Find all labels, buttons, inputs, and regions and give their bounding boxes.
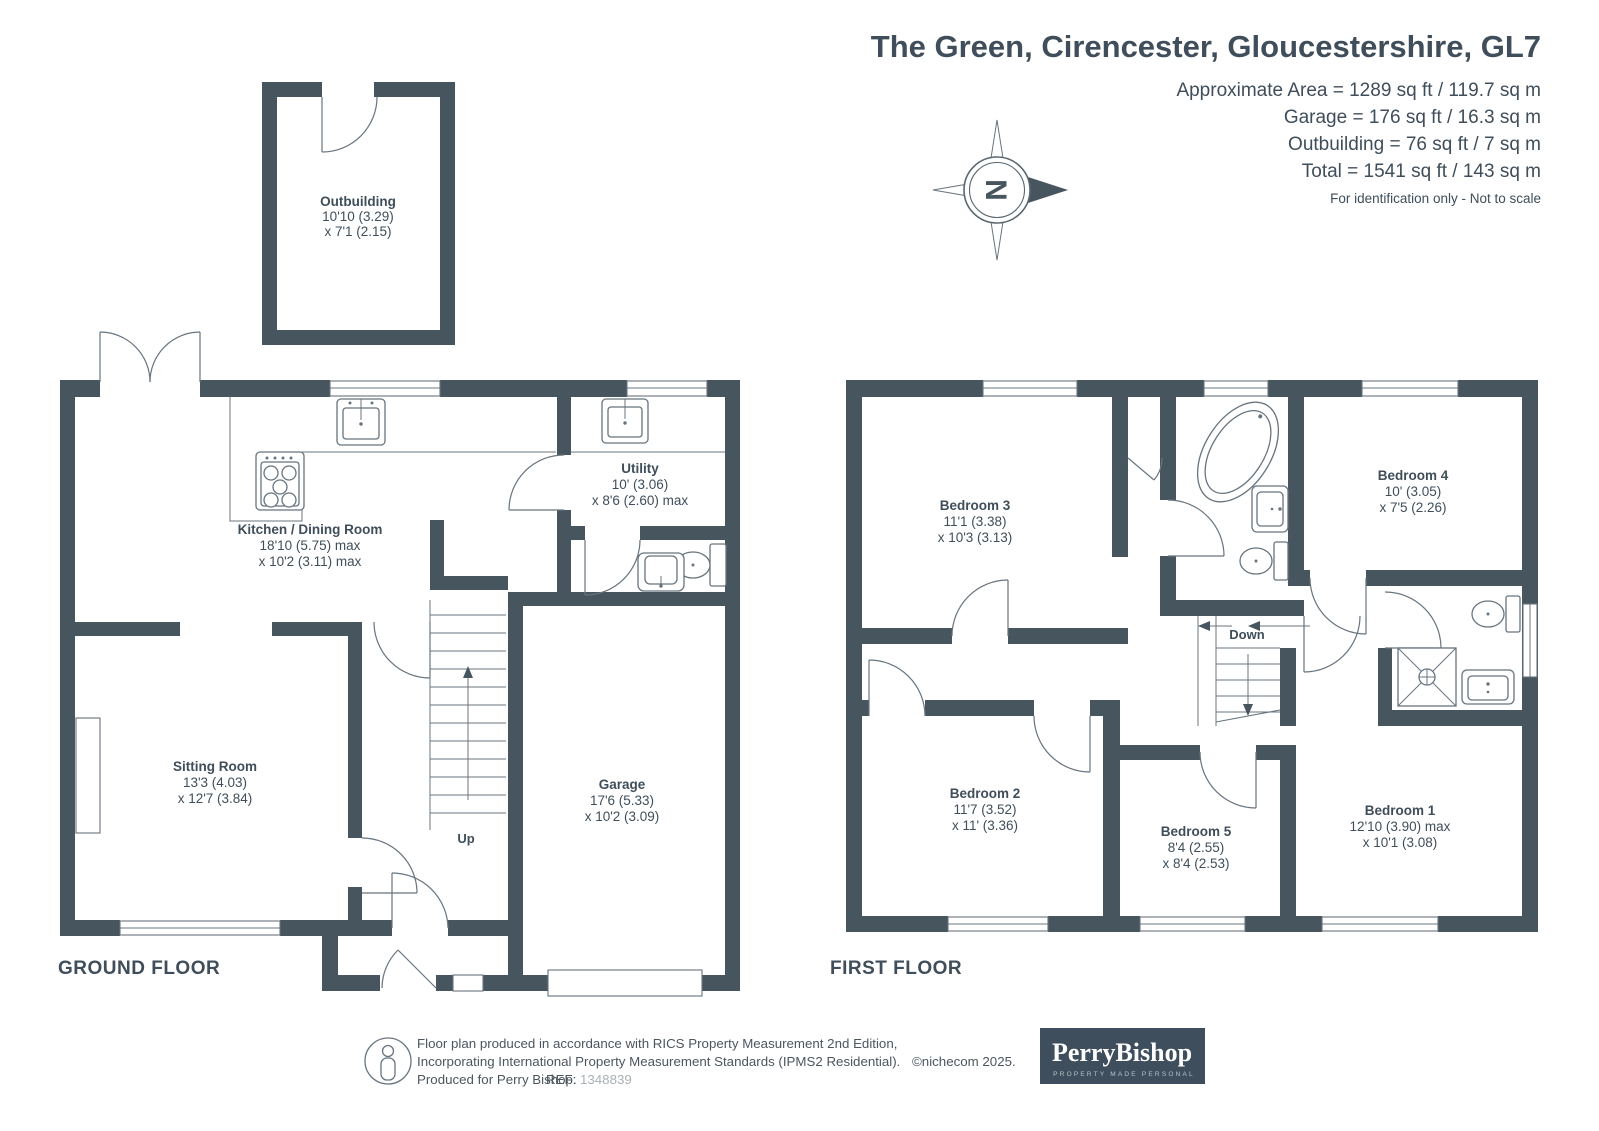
area-line: Garage = 176 sq ft / 16.3 sq m — [1284, 107, 1541, 128]
svg-text:10'10 (3.29): 10'10 (3.29) — [322, 209, 394, 224]
svg-text:Bedroom 2: Bedroom 2 — [950, 786, 1021, 801]
stairs-down-label: Down — [1229, 627, 1264, 642]
svg-text:8'4 (2.55): 8'4 (2.55) — [1168, 840, 1225, 855]
svg-text:11'7 (3.52): 11'7 (3.52) — [953, 802, 1016, 817]
ensuite-toilet-icon — [1472, 596, 1520, 632]
kitchen-sink-icon — [337, 399, 385, 445]
floorplan-page: The Green, Cirencester, Gloucestershire,… — [0, 0, 1599, 1131]
room-label-outbuilding: Outbuilding 10'10 (3.29) x 7'1 (2.15) — [320, 194, 396, 239]
svg-text:x 10'3 (3.13): x 10'3 (3.13) — [938, 530, 1013, 545]
ground-floor-labels: Outbuilding 10'10 (3.29) x 7'1 (2.15) Ki… — [58, 194, 688, 979]
svg-text:18'10 (5.75) max: 18'10 (5.75) max — [260, 538, 361, 553]
first-floor-title: FIRST FLOOR — [830, 958, 962, 979]
svg-text:Garage: Garage — [599, 777, 646, 792]
hob-icon — [256, 452, 304, 510]
svg-text:Outbuilding: Outbuilding — [320, 194, 396, 209]
room-label-bedroom1: Bedroom 1 12'10 (3.90) max x 10'1 (3.08) — [1350, 803, 1451, 850]
area-line: Outbuilding = 76 sq ft / 7 sq m — [1288, 134, 1541, 155]
svg-text:11'1 (3.38): 11'1 (3.38) — [943, 514, 1006, 529]
svg-text:10' (3.06): 10' (3.06) — [612, 477, 669, 492]
stairs-up: Up — [430, 600, 506, 846]
person-icon — [365, 1038, 411, 1084]
room-label-garage: Garage 17'6 (5.33) x 10'2 (3.09) — [585, 777, 660, 824]
page-title: The Green, Cirencester, Gloucestershire,… — [871, 29, 1541, 64]
svg-text:x 10'2 (3.11) max: x 10'2 (3.11) max — [259, 554, 362, 569]
room-label-bedroom2: Bedroom 2 11'7 (3.52) x 11' (3.36) — [950, 786, 1021, 833]
bathroom-toilet-icon — [1240, 542, 1288, 580]
bathroom-sink-icon — [1252, 486, 1288, 532]
ground-floor-walls — [60, 82, 740, 991]
svg-text:10' (3.05): 10' (3.05) — [1385, 484, 1442, 499]
svg-text:x 10'2 (3.09): x 10'2 (3.09) — [585, 809, 660, 824]
svg-text:x 7'5 (2.26): x 7'5 (2.26) — [1379, 500, 1446, 515]
svg-text:Utility: Utility — [621, 461, 659, 476]
first-floor-labels: Bedroom 3 11'1 (3.38) x 10'3 (3.13) Bedr… — [830, 468, 1451, 979]
logo-tagline: PROPERTY MADE PERSONAL — [1053, 1071, 1195, 1078]
compass-north-letter: N — [979, 179, 1012, 201]
compass-icon: N — [933, 120, 1068, 260]
disclaimer: For identification only - Not to scale — [1330, 191, 1541, 206]
logo-name: PerryBishop — [1052, 1038, 1192, 1067]
svg-text:Bedroom 1: Bedroom 1 — [1365, 803, 1436, 818]
stairs-up-label: Up — [457, 831, 474, 846]
svg-text:Bedroom 4: Bedroom 4 — [1378, 468, 1449, 483]
shower-icon — [1398, 648, 1456, 706]
utility-sink-icon — [602, 399, 648, 443]
svg-text:x 11' (3.36): x 11' (3.36) — [952, 818, 1018, 833]
area-line: Approximate Area = 1289 sq ft / 119.7 sq… — [1176, 80, 1541, 101]
footer-copyright: ©nichecom 2025. — [912, 1054, 1016, 1069]
svg-text:x 8'4 (2.53): x 8'4 (2.53) — [1162, 856, 1229, 871]
area-line: Total = 1541 sq ft / 143 sq m — [1302, 161, 1541, 182]
room-label-bedroom4: Bedroom 4 10' (3.05) x 7'5 (2.26) — [1378, 468, 1449, 515]
footer-line1: Floor plan produced in accordance with R… — [417, 1036, 897, 1051]
svg-text:13'3 (4.03): 13'3 (4.03) — [183, 775, 247, 790]
floorplan-canvas: The Green, Cirencester, Gloucestershire,… — [0, 0, 1599, 1131]
room-label-bedroom3: Bedroom 3 11'1 (3.38) x 10'3 (3.13) — [938, 498, 1013, 545]
room-label-utility: Utility 10' (3.06) x 8'6 (2.60) max — [592, 461, 689, 508]
ground-floor-title: GROUND FLOOR — [58, 958, 220, 979]
room-label-kitchen: Kitchen / Dining Room 18'10 (5.75) max x… — [238, 522, 383, 569]
footer-line2: Incorporating International Property Mea… — [417, 1054, 900, 1069]
footer-ref-label: REF: — [546, 1072, 576, 1087]
svg-text:12'10 (3.90) max: 12'10 (3.90) max — [1350, 819, 1451, 834]
svg-text:x 8'6 (2.60) max: x 8'6 (2.60) max — [592, 493, 689, 508]
wc-sink-icon — [638, 553, 684, 591]
svg-text:x 10'1 (3.08): x 10'1 (3.08) — [1363, 835, 1438, 850]
perrybishop-logo: PerryBishop PROPERTY MADE PERSONAL — [1040, 1028, 1205, 1084]
svg-text:Bedroom 3: Bedroom 3 — [940, 498, 1011, 513]
svg-text:Kitchen / Dining Room: Kitchen / Dining Room — [238, 522, 383, 537]
footer: Floor plan produced in accordance with R… — [365, 1028, 1205, 1087]
room-label-bedroom5: Bedroom 5 8'4 (2.55) x 8'4 (2.53) — [1161, 824, 1232, 871]
footer-ref-number: 1348839 — [580, 1072, 632, 1087]
room-label-sitting: Sitting Room 13'3 (4.03) x 12'7 (3.84) — [173, 759, 257, 806]
svg-text:17'6 (5.33): 17'6 (5.33) — [590, 793, 654, 808]
ensuite-sink-icon — [1462, 670, 1514, 704]
svg-text:Bedroom 5: Bedroom 5 — [1161, 824, 1232, 839]
svg-text:Sitting Room: Sitting Room — [173, 759, 257, 774]
svg-text:x 7'1 (2.15): x 7'1 (2.15) — [324, 224, 391, 239]
svg-text:x 12'7 (3.84): x 12'7 (3.84) — [178, 791, 253, 806]
